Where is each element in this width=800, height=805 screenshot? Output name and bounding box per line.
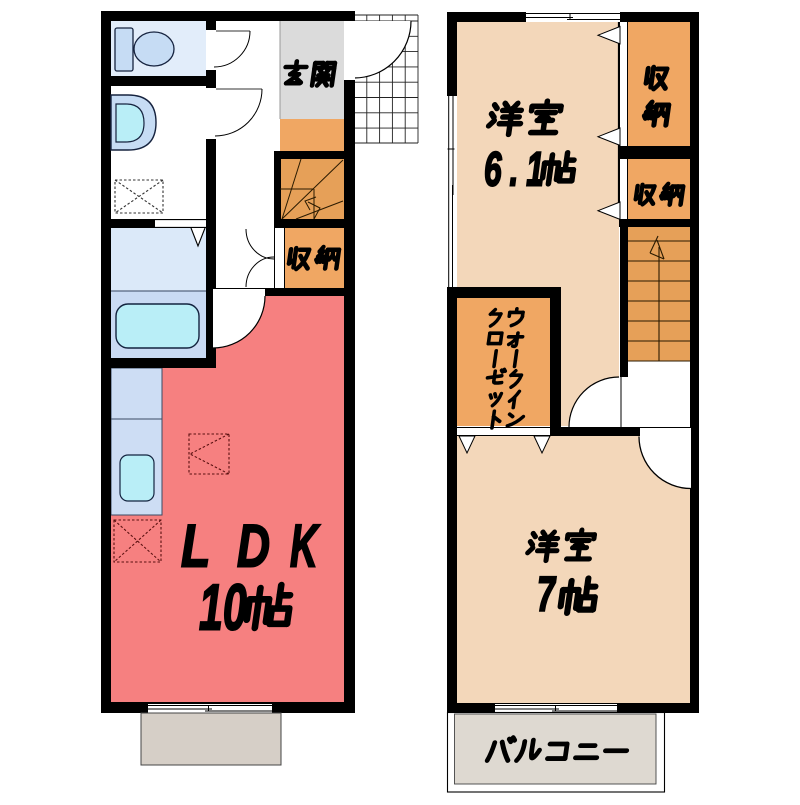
svg-text:K: K (290, 512, 320, 580)
svg-text:7: 7 (537, 566, 556, 621)
svg-text:10: 10 (199, 570, 247, 643)
